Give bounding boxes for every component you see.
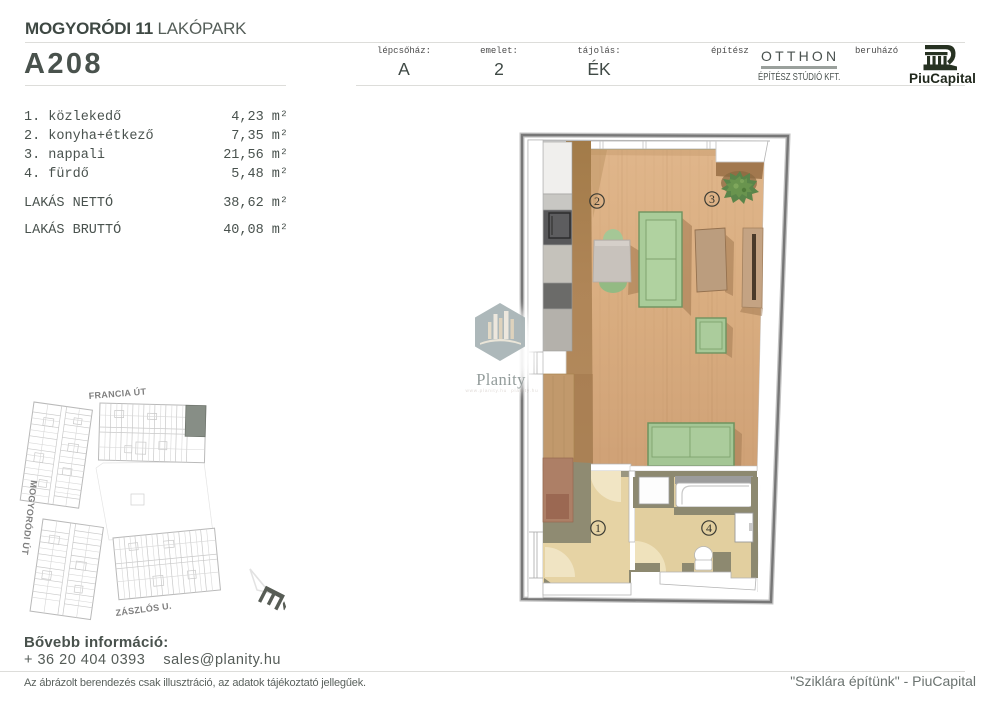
svg-text:ZÁSZLÓS U.: ZÁSZLÓS U. bbox=[115, 600, 172, 618]
svg-text:4: 4 bbox=[706, 521, 712, 535]
svg-text:FRANCIA ÚT: FRANCIA ÚT bbox=[88, 385, 147, 401]
svg-text:1: 1 bbox=[595, 521, 601, 535]
svg-text:3: 3 bbox=[709, 192, 715, 206]
svg-text:2: 2 bbox=[594, 194, 600, 208]
svg-text:Planity: Planity bbox=[476, 370, 526, 389]
svg-text:www.planity.hu planity.hu: www.planity.hu planity.hu bbox=[466, 388, 539, 393]
svg-text:É: É bbox=[251, 581, 292, 615]
